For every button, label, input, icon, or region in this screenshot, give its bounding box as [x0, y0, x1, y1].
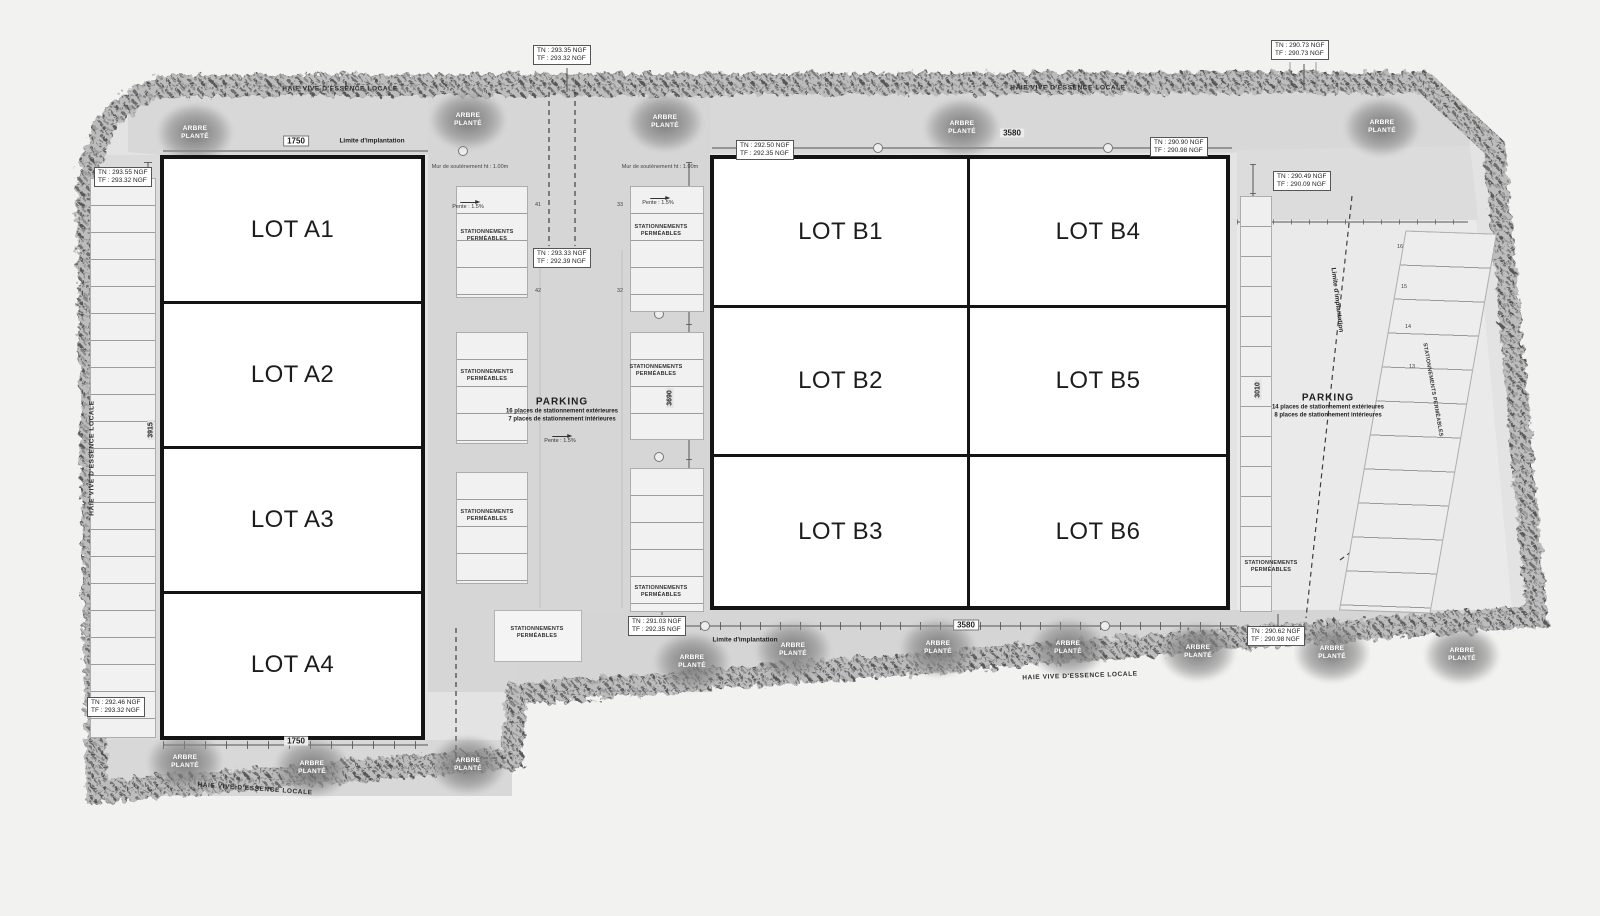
tree-label: ARBRE PLANTÉ — [291, 760, 333, 776]
stall-number: 41 — [535, 202, 541, 208]
tree-label: ARBRE PLANTÉ — [917, 640, 959, 656]
stall-number: 42 — [535, 288, 541, 294]
tf-value: TF : 292.39 NGF — [537, 258, 587, 266]
parking-center-title: PARKING — [506, 396, 618, 407]
parking-stalls-right-inner — [1240, 196, 1272, 612]
tn-value: TN : 290.90 NGF — [1154, 139, 1204, 147]
slope-annotation: Pente : 1.5% — [642, 198, 674, 206]
stall-number: 15 — [1401, 284, 1407, 290]
planted-tree: ARBRE PLANTÉ — [925, 99, 999, 157]
lot-b1-label: LOT B1 — [798, 218, 883, 246]
site-plan-canvas: ARBRE PLANTÉ ARBRE PLANTÉ ARBRE PLANTÉ A… — [0, 0, 1600, 916]
dimension-left-vertical: 3915 — [148, 420, 155, 440]
lot-b1[interactable]: LOT B1 — [714, 159, 970, 308]
planted-tree: ARBRE PLANTÉ — [1345, 98, 1419, 156]
lot-b6-label: LOT B6 — [1056, 518, 1141, 546]
elevation-label-b-bottom-right: TN : 290.62 NGFTF : 290.98 NGF — [1247, 626, 1305, 646]
slope-arrow-icon — [650, 198, 666, 199]
planted-tree: ARBRE PLANTÉ — [158, 104, 232, 162]
lot-a4[interactable]: LOT A4 — [164, 591, 421, 736]
lot-b2-label: LOT B2 — [798, 367, 883, 395]
limite-implantation-bottom: Limite d'implantation — [712, 637, 777, 644]
stall-number: 16 — [1397, 244, 1403, 250]
stationnements-permeables-label: STATIONNEMENTS PERMÉABLES — [623, 364, 689, 378]
tn-value: TN : 290.62 NGF — [1251, 628, 1301, 636]
tf-value: TF : 290.09 NGF — [1277, 181, 1327, 189]
elevation-label-left-upper: TN : 293.55 NGFTF : 293.32 NGF — [94, 167, 152, 187]
limite-implantation-top: Limite d'implantation — [339, 138, 404, 145]
stall-number: 14 — [1405, 324, 1411, 330]
dimension-center-vertical: 3690 — [667, 388, 674, 408]
elevation-label-right-upper: TN : 290.49 NGFTF : 290.09 NGF — [1273, 171, 1331, 191]
lot-b3[interactable]: LOT B3 — [714, 457, 970, 606]
parking-stalls-center-left-3 — [456, 472, 528, 584]
dimension-right-vertical: 3010 — [1255, 380, 1262, 400]
building-b: LOT B1 LOT B4 LOT B2 LOT B5 LOT B3 LOT B… — [710, 155, 1230, 610]
tree-label: ARBRE PLANTÉ — [772, 642, 814, 658]
stationnements-permeables-label: STATIONNEMENTS PERMÉABLES — [504, 626, 570, 640]
elevation-label-b-bottom-left: TN : 291.03 NGFTF : 292.35 NGF — [628, 616, 686, 636]
tree-label: ARBRE PLANTÉ — [941, 120, 983, 136]
stall-number: 33 — [617, 202, 623, 208]
tree-label: ARBRE PLANTÉ — [174, 125, 216, 141]
lot-b6[interactable]: LOT B6 — [970, 457, 1226, 606]
lot-a1-label: LOT A1 — [251, 216, 334, 244]
stationnements-permeables-label: STATIONNEMENTS PERMÉABLES — [628, 585, 694, 599]
elevation-label-top-center: TN : 293.35 NGFTF : 293.32 NGF — [533, 45, 591, 65]
planted-tree: ARBRE PLANTÉ — [1031, 619, 1105, 677]
slope-arrow-icon — [552, 436, 568, 437]
slope-arrow-icon — [460, 202, 476, 203]
parking-right-line2: 8 places de stationnement intérieures — [1272, 412, 1384, 420]
tree-label: ARBRE PLANTÉ — [447, 757, 489, 773]
lot-b2[interactable]: LOT B2 — [714, 308, 970, 457]
tree-label: ARBRE PLANTÉ — [1441, 647, 1483, 663]
elevation-label-top-right: TN : 290.73 NGFTF : 290.73 NGF — [1271, 40, 1329, 60]
parking-stalls-center-left-2 — [456, 332, 528, 444]
parking-center-line2: 7 places de stationnement intérieures — [506, 416, 618, 424]
planted-tree: ARBRE PLANTÉ — [431, 91, 505, 149]
lot-a2[interactable]: LOT A2 — [164, 301, 421, 446]
planted-tree: ARBRE PLANTÉ — [1425, 626, 1499, 684]
lot-a1[interactable]: LOT A1 — [164, 159, 421, 301]
stationnements-permeables-label: STATIONNEMENTS PERMÉABLES — [454, 229, 520, 243]
building-a: LOT A1 LOT A2 LOT A3 LOT A4 — [160, 155, 425, 740]
tf-value: TF : 290.98 NGF — [1251, 636, 1301, 644]
dimension-bottom-b: 3580 — [953, 620, 979, 631]
lot-b5[interactable]: LOT B5 — [970, 308, 1226, 457]
tn-value: TN : 293.55 NGF — [98, 169, 148, 177]
lot-a3-label: LOT A3 — [251, 506, 334, 534]
tn-value: TN : 290.73 NGF — [1275, 42, 1325, 50]
tn-value: TN : 293.33 NGF — [537, 250, 587, 258]
tn-value: TN : 292.46 NGF — [91, 699, 141, 707]
lot-a3[interactable]: LOT A3 — [164, 446, 421, 591]
parking-right-title: PARKING — [1272, 392, 1384, 403]
tf-value: TF : 293.32 NGF — [98, 177, 148, 185]
dimension-bottom-a: 1750 — [284, 737, 308, 746]
stall-number: 32 — [617, 288, 623, 294]
stationnements-permeables-label: STATIONNEMENTS PERMÉABLES — [454, 369, 520, 383]
mur-soutenement-label: Mur de soutènement ht : 1.00m — [622, 164, 698, 170]
stationnements-permeables-label: STATIONNEMENTS PERMÉABLES — [454, 509, 520, 523]
tn-value: TN : 291.03 NGF — [632, 618, 682, 626]
lot-a2-label: LOT A2 — [251, 361, 334, 389]
hedge-label-top-left: HAIE VIVE D'ESSENCE LOCALE — [282, 86, 397, 93]
elevation-label-left-lower: TN : 292.46 NGFTF : 293.32 NGF — [87, 697, 145, 717]
planted-tree: ARBRE PLANTÉ — [628, 93, 702, 151]
tf-value: TF : 292.35 NGF — [632, 626, 682, 634]
parking-right-note: PARKING 14 places de stationnement extér… — [1272, 392, 1384, 419]
elevation-label-b-top-left: TN : 292.50 NGFTF : 292.35 NGF — [736, 140, 794, 160]
tree-label: ARBRE PLANTÉ — [1177, 644, 1219, 660]
parking-center-note: PARKING 16 places de stationnement extér… — [506, 396, 618, 423]
dimension-top-b: 3580 — [1000, 129, 1024, 138]
slope-text: Pente : 1.5% — [642, 200, 674, 206]
mur-soutenement-label: Mur de soutènement ht : 1.00m — [432, 164, 508, 170]
lot-b3-label: LOT B3 — [798, 518, 883, 546]
tf-value: TF : 293.32 NGF — [537, 55, 587, 63]
hedge-label-left: HAIE VIVE D'ESSENCE LOCALE — [89, 400, 96, 515]
elevation-label-b-top-right: TN : 290.90 NGFTF : 290.98 NGF — [1150, 137, 1208, 157]
stationnements-permeables-label: STATIONNEMENTS PERMÉABLES — [1238, 560, 1304, 574]
lot-b5-label: LOT B5 — [1056, 367, 1141, 395]
slope-text: Pente : 1.5% — [452, 204, 484, 210]
tf-value: TF : 290.98 NGF — [1154, 147, 1204, 155]
tf-value: TF : 290.73 NGF — [1275, 50, 1325, 58]
parking-stalls-left — [90, 178, 156, 738]
parking-stalls-center-right-2 — [630, 332, 704, 440]
lot-b4-label: LOT B4 — [1056, 218, 1141, 246]
hedge-label-top-right: HAIE VIVE D'ESSENCE LOCALE — [1010, 85, 1125, 92]
slope-text: Pente : 1.5% — [544, 438, 576, 444]
tree-label: ARBRE PLANTÉ — [1361, 119, 1403, 135]
tn-value: TN : 293.35 NGF — [537, 47, 587, 55]
slope-annotation: Pente : 1.5% — [452, 202, 484, 210]
dimension-top-left: 1750 — [283, 136, 309, 147]
slope-annotation: Pente : 1.5% — [544, 436, 576, 444]
stall-number: 13 — [1409, 364, 1415, 370]
elevation-label-center-mid: TN : 293.33 NGFTF : 292.39 NGF — [533, 248, 591, 268]
planted-tree: ARBRE PLANTÉ — [1295, 624, 1369, 682]
lot-a4-label: LOT A4 — [251, 651, 334, 679]
tree-label: ARBRE PLANTÉ — [447, 112, 489, 128]
tf-value: TF : 293.32 NGF — [91, 707, 141, 715]
tree-label: ARBRE PLANTÉ — [164, 754, 206, 770]
parking-right-line1: 14 places de stationnement extérieures — [1272, 403, 1384, 411]
tree-label: ARBRE PLANTÉ — [1047, 640, 1089, 656]
lot-b4[interactable]: LOT B4 — [970, 159, 1226, 308]
stationnements-permeables-label: STATIONNEMENTS PERMÉABLES — [628, 224, 694, 238]
tn-value: TN : 290.49 NGF — [1277, 173, 1327, 181]
planted-tree: ARBRE PLANTÉ — [1161, 623, 1235, 681]
tree-label: ARBRE PLANTÉ — [1311, 645, 1353, 661]
planted-tree: ARBRE PLANTÉ — [431, 736, 505, 794]
parking-center-line1: 16 places de stationnement extérieures — [506, 407, 618, 415]
tree-label: ARBRE PLANTÉ — [644, 114, 686, 130]
tf-value: TF : 292.35 NGF — [740, 150, 790, 158]
tn-value: TN : 292.50 NGF — [740, 142, 790, 150]
tree-label: ARBRE PLANTÉ — [671, 654, 713, 670]
planted-tree: ARBRE PLANTÉ — [756, 621, 830, 679]
